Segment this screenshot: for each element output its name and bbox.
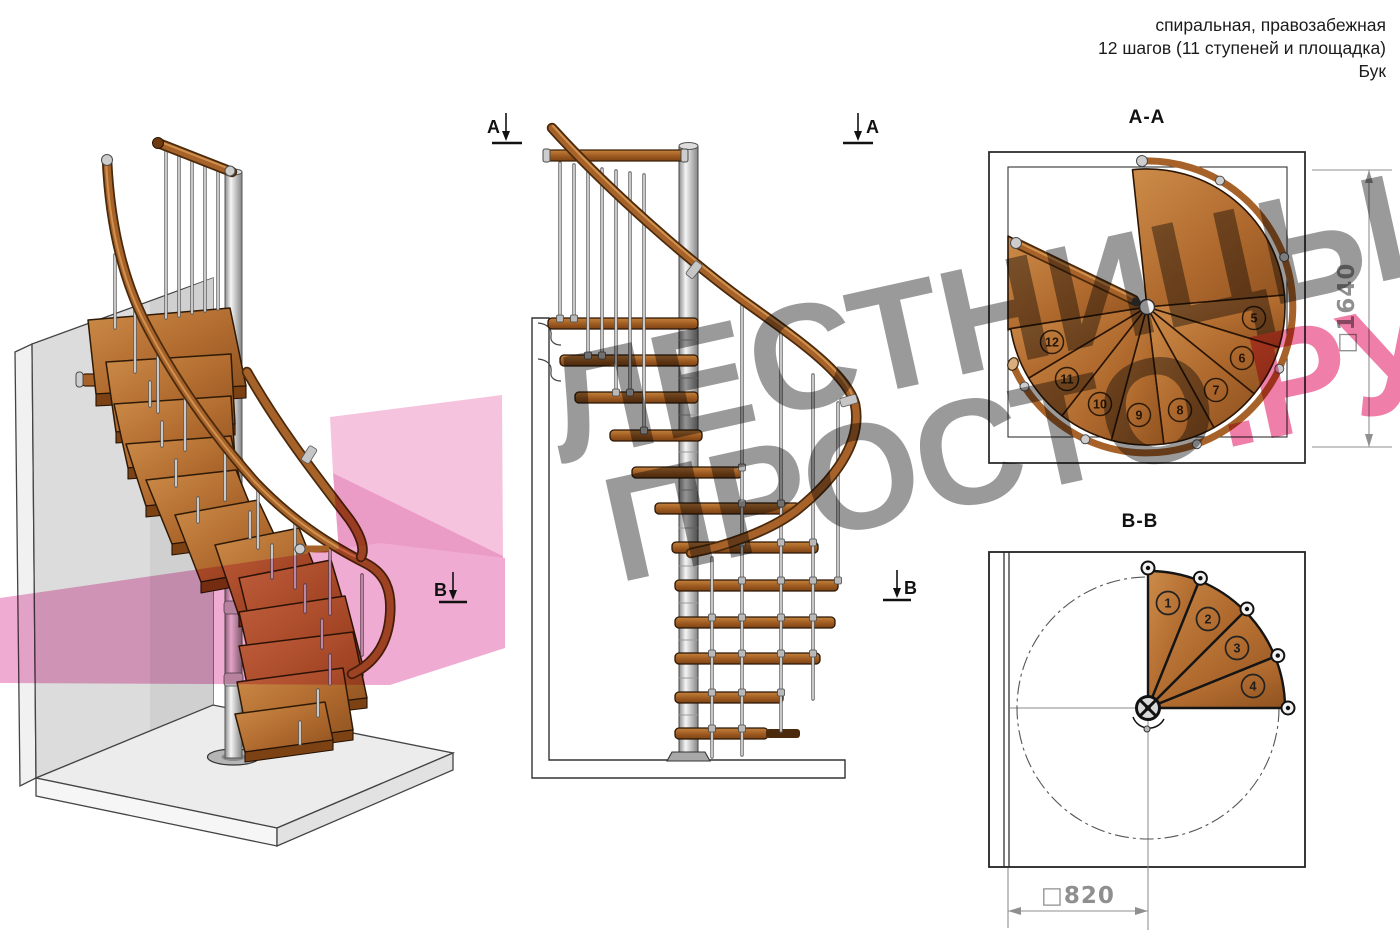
- svg-text:10: 10: [1093, 398, 1107, 412]
- svg-text:2: 2: [1205, 613, 1212, 627]
- elevation-view: [532, 126, 858, 778]
- section-marker-a-left: A: [487, 113, 522, 143]
- svg-text:5: 5: [1251, 312, 1258, 326]
- dimension-bb-label: □820: [1041, 883, 1115, 909]
- section-aa-title: A-A: [1129, 107, 1166, 128]
- svg-text:A: A: [487, 117, 500, 137]
- center-pole-elevation: [667, 143, 710, 762]
- dimension-bb: □820: [1008, 868, 1148, 928]
- svg-text:4: 4: [1250, 680, 1257, 694]
- dimension-aa-label: □1640: [1334, 263, 1360, 354]
- baluster-knobs: [557, 315, 842, 732]
- svg-text:8: 8: [1177, 404, 1184, 418]
- svg-text:B: B: [904, 578, 917, 598]
- landing-rail-elevation: [543, 149, 688, 162]
- svg-text:11: 11: [1060, 373, 1073, 387]
- svg-text:6: 6: [1239, 352, 1246, 366]
- svg-text:7: 7: [1213, 384, 1220, 398]
- svg-text:9: 9: [1136, 409, 1143, 423]
- section-bb-title: B-B: [1122, 511, 1159, 532]
- staircase-type-label: спиральная, правозабежная: [1098, 14, 1386, 37]
- staircase-drawing: A A B B A-A: [0, 0, 1400, 939]
- balusters-elevation: [557, 163, 842, 757]
- svg-text:3: 3: [1234, 642, 1241, 656]
- steps-count-label: 12 шагов (11 ступеней и площадка): [1098, 37, 1386, 60]
- section-marker-a-right: A: [843, 113, 879, 143]
- title-block: спиральная, правозабежная 12 шагов (11 с…: [1098, 14, 1386, 83]
- svg-text:B: B: [434, 580, 447, 600]
- svg-text:1: 1: [1165, 597, 1172, 611]
- svg-text:A: A: [866, 117, 879, 137]
- tread-shadow: [766, 729, 800, 738]
- section-bb-view: B-B: [989, 511, 1305, 930]
- drawing-sheet: A A B B A-A: [0, 0, 1400, 939]
- pole-top-aa: [1140, 300, 1155, 315]
- pole-base-flange: [667, 752, 710, 761]
- dimension-aa: □1640: [1312, 170, 1392, 447]
- section-marker-b-right: B: [883, 570, 917, 600]
- material-label: Бук: [1098, 60, 1386, 83]
- svg-text:12: 12: [1045, 336, 1059, 350]
- section-aa-view: A-A: [989, 107, 1392, 463]
